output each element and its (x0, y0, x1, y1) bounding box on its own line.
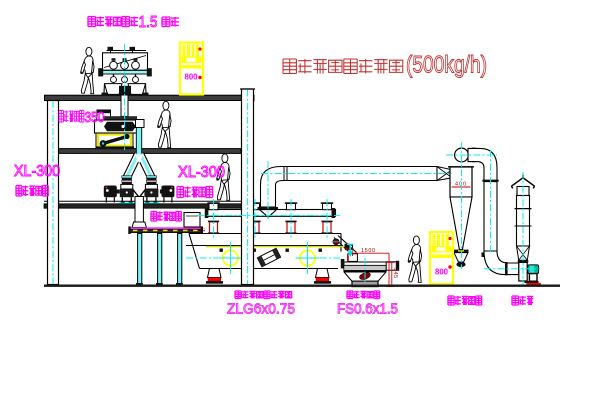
svg-text:XL-300: XL-300 (178, 164, 225, 181)
svg-text:400: 400 (455, 181, 466, 187)
svg-text:1.5: 1.5 (139, 14, 158, 31)
svg-text:800: 800 (185, 72, 198, 82)
svg-text:350: 350 (85, 109, 105, 126)
svg-text:345: 345 (392, 268, 398, 278)
svg-text:XL-300: XL-300 (14, 163, 60, 180)
svg-text:1500: 1500 (361, 248, 375, 254)
svg-text:ZLG6x0.75: ZLG6x0.75 (227, 302, 295, 318)
svg-text:800: 800 (435, 267, 448, 277)
svg-text:(500kg/h): (500kg/h) (406, 52, 487, 79)
svg-text:FS0.6x1.5: FS0.6x1.5 (337, 302, 398, 318)
